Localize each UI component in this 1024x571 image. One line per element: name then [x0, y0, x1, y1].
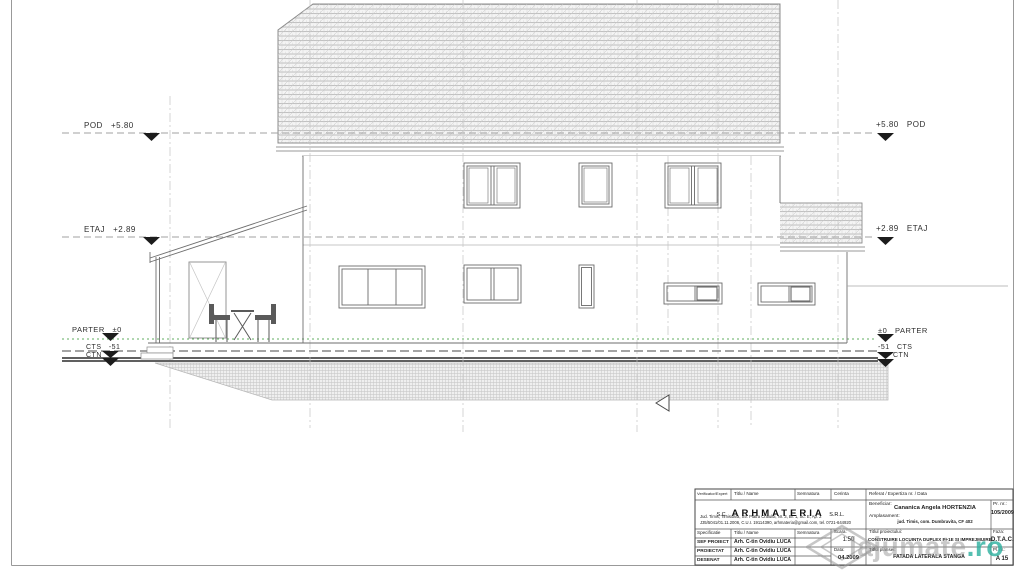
level-label-pod-left: POD +5.80 — [84, 122, 134, 130]
drawing-sheet: POD +5.80 ETAJ +2.89 PARTER ±0 CTS -51 C… — [0, 0, 1024, 571]
row-proiectat-spec: PROIECTAT — [697, 549, 724, 554]
level-label-etaj-left: ETAJ +2.89 — [84, 226, 136, 234]
scara-label: Scara: — [834, 530, 847, 535]
level-label-parter-right: ±0 PARTER — [878, 327, 928, 335]
row-proiectat-name: Arh. C-tin Ovidiu LUCA — [734, 549, 791, 554]
amplasament-value: jud. Timis, com. Dumbravita, CF 402 — [880, 520, 990, 525]
level-label-ctn-right: CTN — [893, 352, 909, 359]
spec-header-specificatie: Specificatie — [697, 531, 721, 536]
pr-nr-value: 105/2009 — [991, 511, 1013, 517]
spec-header-titlu: Titlu / Name — [734, 531, 759, 536]
beneficiar-value: Cananica Angela HORTENZIA — [880, 505, 990, 511]
row-desenat-name: Arh. C-tin Ovidiu LUCA — [734, 558, 791, 563]
level-label-parter-left: PARTER ±0 — [72, 326, 122, 334]
ctn-line — [62, 358, 878, 361]
elevation-linework — [0, 0, 1024, 571]
spec-header-semnatura: Semnatura — [797, 531, 819, 536]
level-label-ctn-left: CTN — [86, 352, 102, 359]
level-label-pod-right: +5.80 POD — [876, 121, 926, 129]
company-suffix: S.R.L. — [829, 512, 844, 518]
porch-roof — [150, 206, 307, 262]
level-label-cts-left: CTS -51 — [86, 344, 120, 351]
row-desenat-spec: DESENAT — [697, 558, 720, 563]
company-address-1: Jud. Timis, Timisoara, Str. Piatra Craiu… — [700, 515, 821, 519]
ground-hatch — [155, 363, 888, 400]
amplasament-label: Amplasament: — [869, 514, 900, 519]
step — [141, 353, 173, 359]
tb-titlu-name-label: Titlu / Name — [734, 492, 759, 497]
level-label-cts-right: -51 CTS — [878, 344, 912, 351]
watermark-gray-text: lajumate — [849, 531, 967, 562]
level-label-etaj-right: +2.89 ETAJ — [876, 225, 928, 233]
wall-fills — [303, 156, 847, 343]
tb-cerinta-label: Cerinta — [834, 492, 849, 497]
watermark-teal-text: .ro — [967, 531, 1004, 562]
watermark: lajumate.ro — [849, 533, 1004, 561]
tb-referat-label: Referat / Expertiza nr. / Data — [869, 492, 927, 497]
porch — [141, 206, 307, 359]
tb-semnatura-label: Semnatura — [797, 492, 819, 497]
row-sef-proiect-name: Arh. C-tin Ovidiu LUCA — [734, 540, 791, 545]
step — [147, 347, 173, 353]
data-label: Data: — [834, 548, 845, 553]
row-sef-proiect-spec: SEF PROIECT — [697, 540, 729, 545]
pr-nr-label: Pr. nr.: — [993, 502, 1007, 507]
company-address-2: J35/5041/01.11.2006, C.U.I. 19114390, ar… — [700, 521, 851, 525]
terrace-furniture — [209, 304, 276, 342]
tb-verificator-label: Verificator/Expert — [697, 492, 730, 496]
porch-post — [156, 257, 160, 343]
